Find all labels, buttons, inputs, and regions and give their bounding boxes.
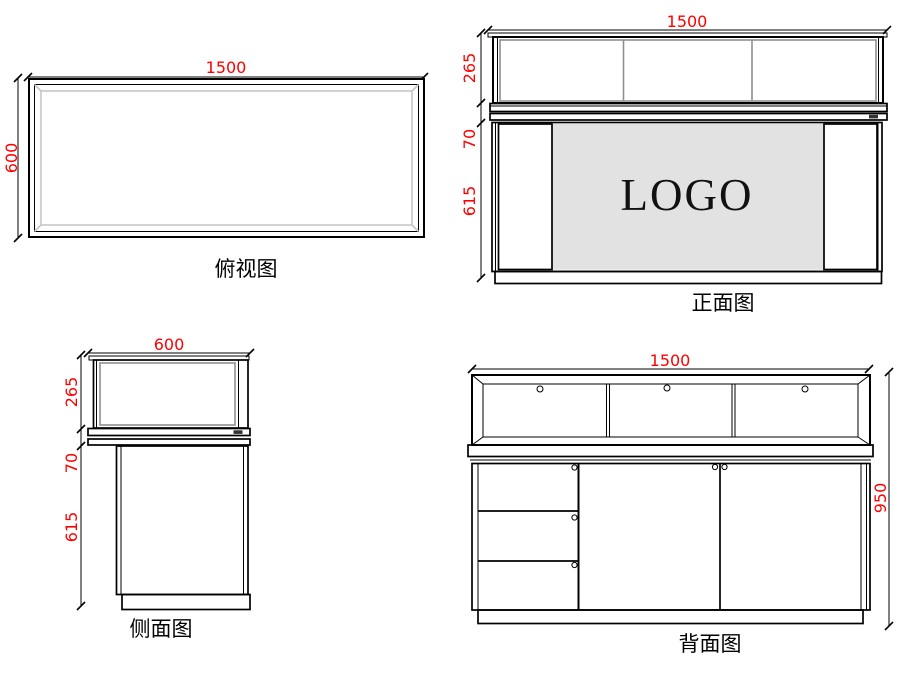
door-knob (722, 464, 727, 469)
back-showcase-frame (472, 375, 870, 445)
countertop-band (490, 104, 887, 112)
side-plinth (122, 595, 250, 610)
side-counter-dimension: 70 (62, 453, 81, 473)
side-view-drawing: 600 265 70 615 侧面图 (62, 335, 254, 641)
back-cabinet-body (472, 464, 870, 611)
front-view-drawing: 1500 265 70 615 (460, 12, 891, 315)
side-view-body (88, 356, 250, 610)
side-countertop-lower-band (88, 439, 250, 445)
front-width-dimension: 1500 (667, 12, 708, 31)
drawer-knob (572, 562, 577, 567)
countertop-lower-band (490, 114, 887, 121)
back-view-drawing: 1500 950 (468, 351, 893, 656)
back-panel-knob (664, 385, 670, 391)
front-upper-dimension: 265 (460, 53, 479, 84)
back-width-dimension: 1500 (650, 351, 691, 370)
side-lower-dimension: 615 (62, 512, 81, 543)
top-depth-dimension: 600 (2, 143, 21, 174)
glass-panel-outline (500, 40, 876, 101)
front-left-side-panel (499, 124, 553, 270)
top-width-dimension: 1500 (206, 58, 247, 77)
side-glass-outline (100, 363, 235, 425)
side-lock-detail (234, 430, 243, 434)
side-depth-dimension: 600 (154, 335, 185, 354)
back-view-label: 背面图 (679, 632, 742, 656)
drawer-knob (572, 515, 577, 520)
front-lower-dimension: 615 (460, 186, 479, 217)
glass-showcase (493, 37, 883, 103)
top-view-label: 俯视图 (215, 257, 278, 281)
back-height-dimension: 950 (871, 483, 890, 514)
counter-top-outer-frame (29, 79, 424, 237)
top-view-drawing: 1500 600 俯视图 (2, 58, 428, 281)
door-knob (712, 464, 717, 469)
front-view-body: LOGO (488, 33, 887, 284)
technical-drawing-canvas: 1500 600 俯视图 1500 (0, 0, 900, 675)
front-plinth (495, 272, 882, 284)
logo-text: LOGO (621, 170, 754, 220)
side-view-label: 侧面图 (130, 617, 193, 641)
back-view-body (468, 375, 873, 624)
side-upper-dimension: 265 (62, 377, 81, 408)
drawer-knob (572, 465, 577, 470)
side-countertop-band (88, 429, 250, 436)
side-cabinet-body (117, 446, 249, 595)
front-counter-dimension: 70 (460, 129, 479, 149)
drawing-sheet: 1500 600 俯视图 1500 (0, 0, 900, 675)
front-right-side-panel (824, 124, 877, 270)
back-panel-knob (802, 386, 808, 392)
back-view-dimensions: 1500 950 (468, 351, 893, 630)
back-countertop-band (468, 445, 873, 457)
side-view-dimensions: 600 265 70 615 (62, 335, 254, 610)
back-plinth (478, 610, 863, 624)
side-glass-showcase (94, 360, 249, 428)
front-view-label: 正面图 (692, 291, 755, 315)
counter-lock-detail (869, 115, 878, 119)
top-view-body (29, 79, 424, 237)
back-panel-knob (537, 386, 543, 392)
